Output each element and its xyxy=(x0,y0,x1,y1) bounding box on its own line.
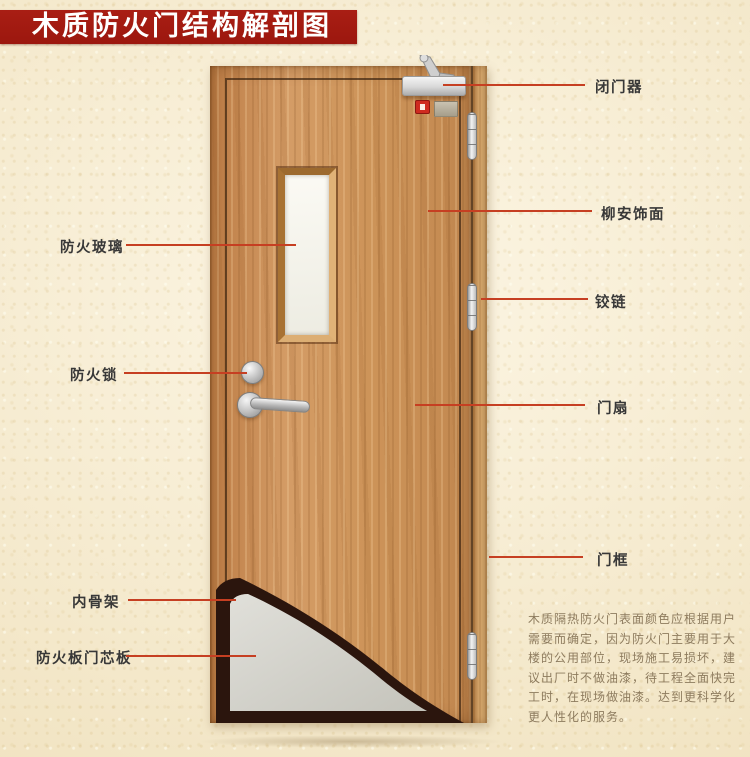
alarm-indicator-icon xyxy=(415,100,430,114)
label-inner-skeleton: 内骨架 xyxy=(72,591,120,612)
leader-hinge xyxy=(481,298,588,300)
note-line: 更人性化的服务。 xyxy=(528,708,740,728)
leader-door-frame xyxy=(489,556,583,558)
label-hinge: 铰链 xyxy=(595,291,627,312)
label-lauan-veneer: 柳安饰面 xyxy=(601,203,665,224)
leader-fire-board-core xyxy=(126,655,256,657)
leader-door-leaf xyxy=(415,404,585,406)
page-title: 木质防火门结构解剖图 xyxy=(0,10,357,44)
label-door-frame: 门框 xyxy=(597,549,629,570)
leader-lauan-veneer xyxy=(428,210,592,212)
note-line: 木质隔热防火门表面颜色应根据用户 xyxy=(528,610,740,630)
door-shadow xyxy=(198,735,504,748)
label-door-leaf: 门扇 xyxy=(597,397,629,418)
hinge-top xyxy=(467,112,477,160)
leader-fire-glass xyxy=(126,244,296,246)
label-fire-glass: 防火玻璃 xyxy=(60,236,124,257)
leader-fire-lock xyxy=(124,372,247,374)
hinge-middle xyxy=(467,283,477,331)
label-fire-board-core: 防火板门芯板 xyxy=(36,647,132,668)
note-line: 需要而确定，因为防火门主要用于大 xyxy=(528,630,740,650)
leader-door-closer xyxy=(443,84,585,86)
description-note: 木质隔热防火门表面颜色应根据用户 需要而确定，因为防火门主要用于大 楼的公用部位… xyxy=(528,610,740,727)
label-plate xyxy=(434,101,458,117)
title-banner: 木质防火门结构解剖图 xyxy=(0,10,357,44)
leader-inner-skeleton xyxy=(128,599,236,601)
label-door-closer: 闭门器 xyxy=(595,76,643,97)
label-fire-lock: 防火锁 xyxy=(70,364,118,385)
door-frame-jamb xyxy=(471,66,487,723)
note-line: 议出厂时不做油漆，待工程全面快完 xyxy=(528,669,740,689)
door-closer-icon xyxy=(402,76,466,96)
fire-door-illustration xyxy=(210,66,487,723)
cutaway-section xyxy=(216,578,470,723)
note-line: 工时，在现场做油漆。达到更科学化 xyxy=(528,688,740,708)
fire-glass-window xyxy=(278,168,336,342)
note-line: 楼的公用部位，现场施工易损坏，建 xyxy=(528,649,740,669)
